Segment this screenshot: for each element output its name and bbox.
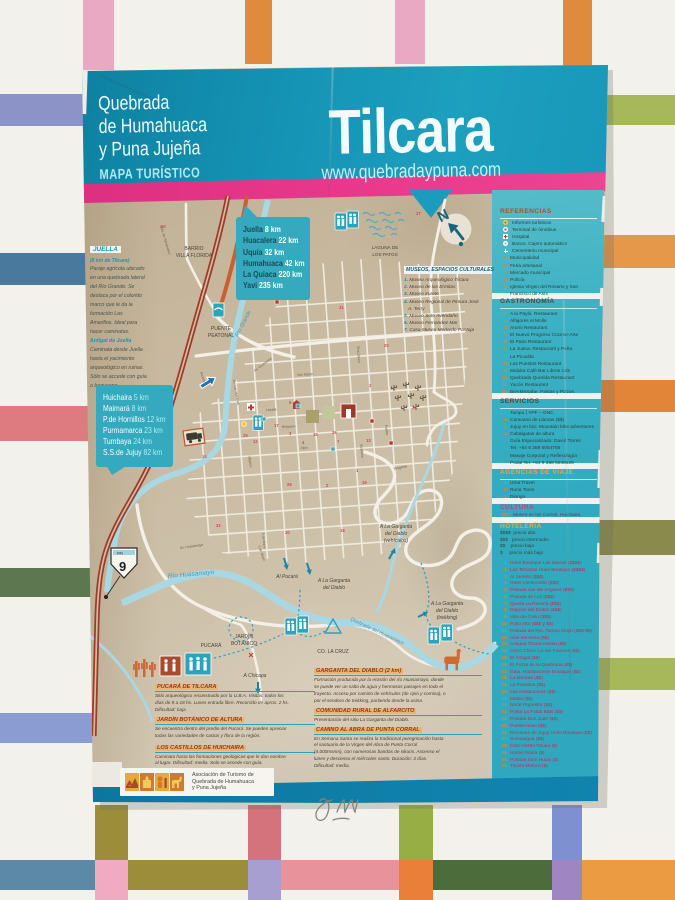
svg-text:20: 20	[384, 343, 389, 348]
svg-text:Av. Costanera: Av. Costanera	[253, 357, 272, 373]
svg-text:VILLA FLORIDA: VILLA FLORIDA	[176, 253, 213, 259]
svg-text:Quebrada del Huasamayo: Quebrada del Huasamayo	[349, 616, 405, 646]
svg-text:del Diablo: del Diablo	[385, 531, 407, 537]
svg-text:26: 26	[332, 430, 337, 435]
svg-text:1: 1	[356, 468, 359, 473]
svg-text:PUENTE: PUENTE	[211, 326, 232, 332]
svg-text:Jujuy: Jujuy	[300, 446, 308, 450]
svg-text:18: 18	[340, 528, 345, 533]
svg-text:26: 26	[287, 482, 292, 487]
svg-text:27: 27	[416, 211, 421, 216]
svg-text:31: 31	[339, 305, 344, 310]
svg-text:BARRIO: BARRIO	[184, 246, 203, 252]
svg-text:7: 7	[337, 439, 340, 444]
svg-text:RN: RN	[117, 551, 123, 556]
svg-text:A La Garganta: A La Garganta	[379, 524, 413, 530]
svg-text:(trekking): (trekking)	[437, 615, 458, 621]
svg-text:Av. Huasamayo: Av. Huasamayo	[180, 543, 204, 550]
svg-text:17: 17	[274, 423, 279, 428]
svg-text:A Chicapa: A Chicapa	[243, 673, 267, 679]
svg-text:LAGUNA DE: LAGUNA DE	[372, 245, 399, 250]
svg-text:PUCARÁ: PUCARÁ	[201, 642, 223, 649]
svg-text:9: 9	[119, 559, 126, 574]
svg-text:Viltipico: Viltipico	[247, 455, 253, 467]
svg-text:PEATONAL: PEATONAL	[208, 333, 234, 339]
svg-text:20: 20	[285, 530, 290, 535]
svg-text:24: 24	[412, 405, 417, 410]
svg-text:A La Garganta: A La Garganta	[430, 601, 464, 607]
svg-text:Belgrano: Belgrano	[282, 424, 296, 429]
svg-text:2: 2	[369, 383, 372, 388]
svg-text:JARDÍN: JARDÍN	[235, 633, 253, 640]
svg-text:(vehículos): (vehículos)	[384, 538, 409, 544]
svg-text:Al Pucará: Al Pucará	[275, 574, 298, 580]
svg-text:13: 13	[366, 438, 371, 443]
svg-text:15: 15	[313, 432, 318, 437]
svg-text:14: 14	[202, 454, 207, 459]
svg-text:12: 12	[253, 439, 258, 444]
svg-text:A La Garganta: A La Garganta	[317, 578, 351, 584]
svg-text:Chacabuco: Chacabuco	[356, 346, 361, 364]
svg-text:Acceso: Acceso	[199, 371, 206, 383]
svg-text:BOTÁNICO: BOTÁNICO	[231, 640, 257, 647]
svg-text:Padilla: Padilla	[384, 425, 389, 436]
svg-text:19: 19	[362, 480, 367, 485]
svg-text:32: 32	[216, 523, 221, 528]
svg-text:LOS PATOS: LOS PATOS	[372, 252, 397, 257]
svg-text:5: 5	[289, 400, 292, 405]
svg-text:2: 2	[326, 483, 329, 488]
svg-text:CO. LA CRUZ: CO. LA CRUZ	[317, 649, 348, 655]
svg-text:del Diablo: del Diablo	[323, 585, 345, 591]
svg-text:25: 25	[243, 433, 248, 438]
svg-text:Sorpresa: Sorpresa	[359, 444, 364, 458]
svg-text:4: 4	[302, 440, 305, 445]
svg-text:del Diablo: del Diablo	[436, 608, 458, 614]
svg-text:Lavalle: Lavalle	[266, 407, 277, 412]
